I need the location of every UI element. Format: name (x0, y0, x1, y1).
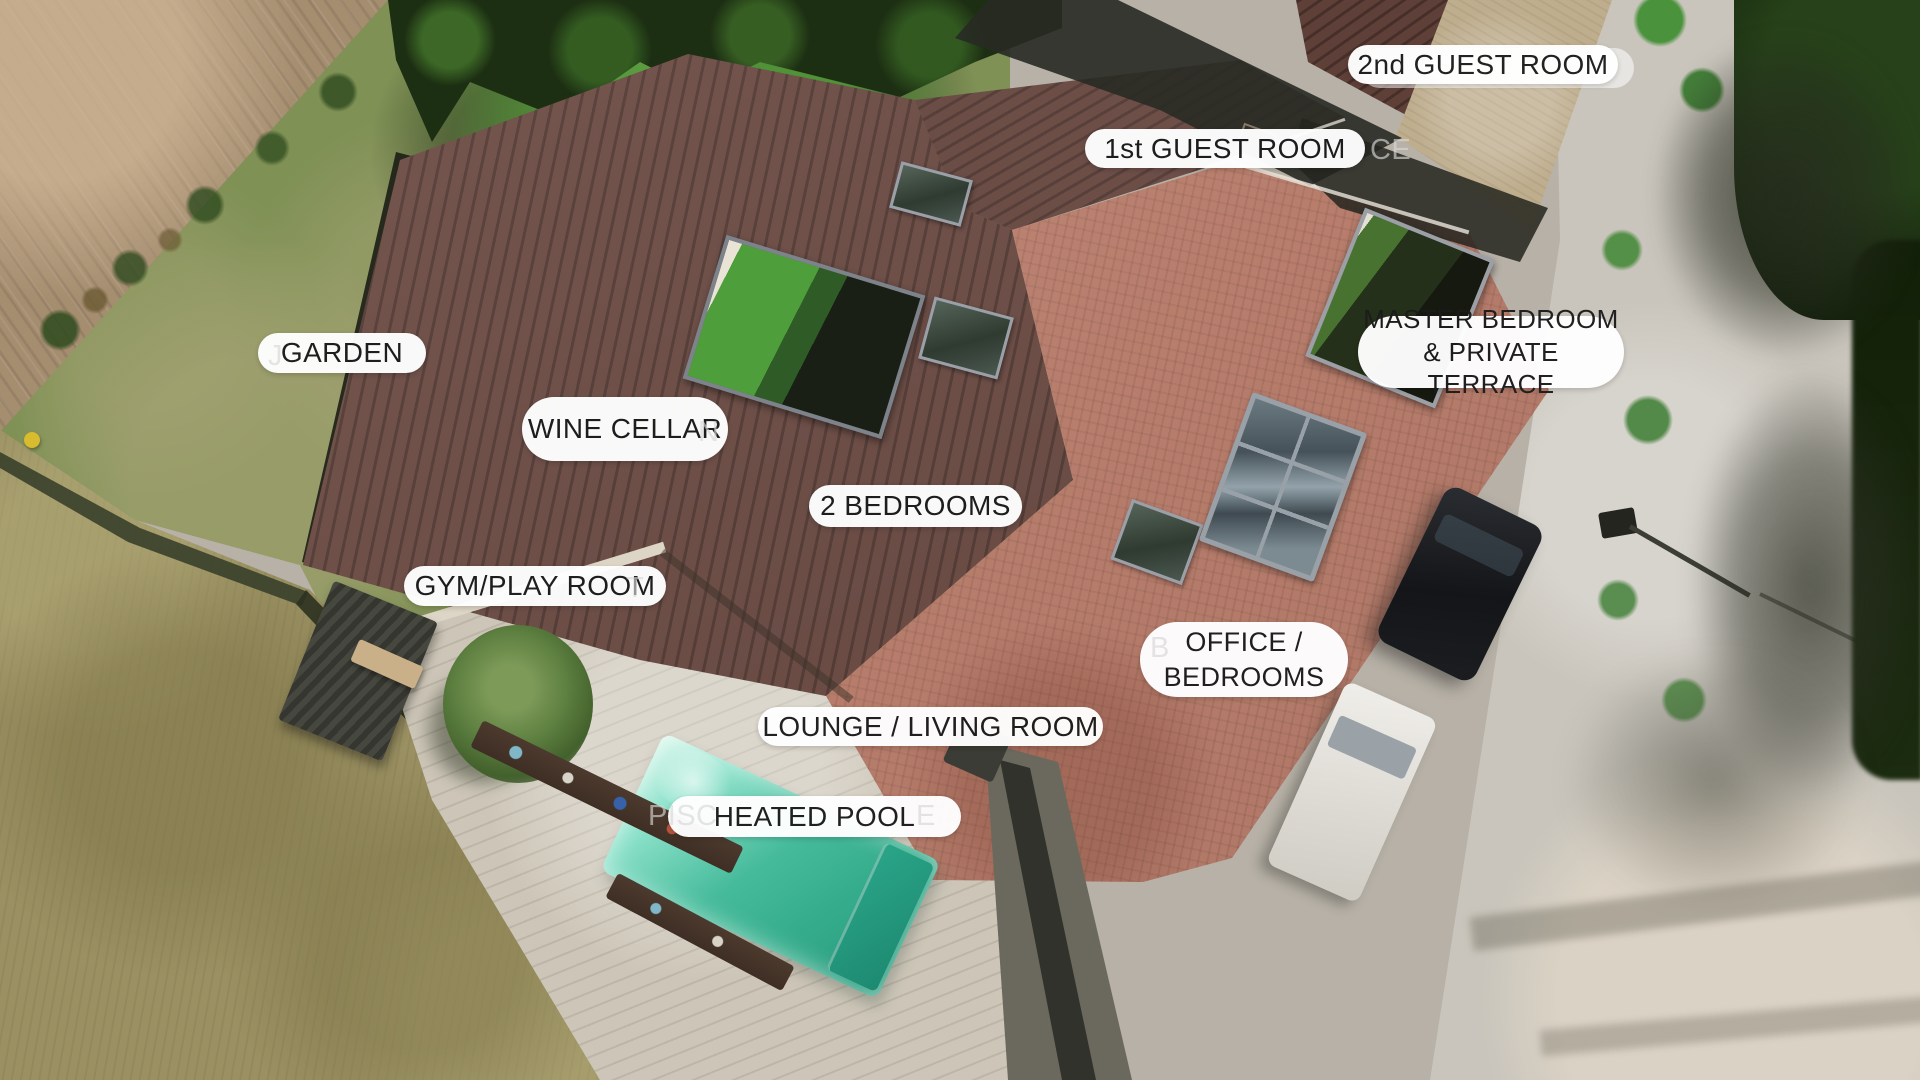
ghost-fragment-ghost-b: B (1150, 632, 1170, 665)
room-label-text: GYM/PLAY ROOM (415, 568, 656, 603)
room-label-office-bedrooms: OFFICE / BEDROOMS (1140, 622, 1348, 697)
room-label-text: GARDEN (281, 335, 403, 370)
room-label-garden: GARDEN (258, 333, 426, 373)
ghost-fragment-ghost-ce: CE (1370, 134, 1411, 167)
room-label-text: 2 BEDROOMS (820, 488, 1011, 523)
ghost-fragment-ghost-e: E (916, 800, 936, 833)
room-label-text: OFFICE / BEDROOMS (1164, 625, 1325, 693)
room-label-text: LOUNGE / LIVING ROOM (762, 709, 1098, 744)
labels-layer: 2nd GUEST ROOM1st GUEST ROOMGARDENWINE C… (0, 0, 1920, 1080)
ghost-fragment-ghost-j: J (268, 340, 283, 373)
room-label-master-bedroom: MASTER BEDROOM & PRIVATE TERRACE (1358, 316, 1624, 388)
aerial-photo: CEJNTBPISCE 2nd GUEST ROOM1st GUEST ROOM… (0, 0, 1920, 1080)
ghost-fragment-ghost-pisc: PISC (648, 800, 717, 833)
room-label-second-guest-room: 2nd GUEST ROOM (1348, 45, 1618, 84)
room-label-first-guest-room: 1st GUEST ROOM (1085, 129, 1365, 168)
room-label-text: HEATED POOL (714, 799, 915, 834)
room-label-text: 1st GUEST ROOM (1104, 131, 1346, 166)
ghost-fragment-ghost-n: N (698, 416, 719, 449)
room-label-text: WINE CELLAR (528, 411, 722, 446)
room-label-text: MASTER BEDROOM & PRIVATE TERRACE (1358, 303, 1624, 401)
ghost-fragment-ghost-t: T (626, 572, 644, 605)
room-label-two-bedrooms: 2 BEDROOMS (809, 485, 1022, 527)
room-label-text: 2nd GUEST ROOM (1358, 47, 1609, 82)
room-label-lounge-living-room: LOUNGE / LIVING ROOM (758, 707, 1103, 746)
